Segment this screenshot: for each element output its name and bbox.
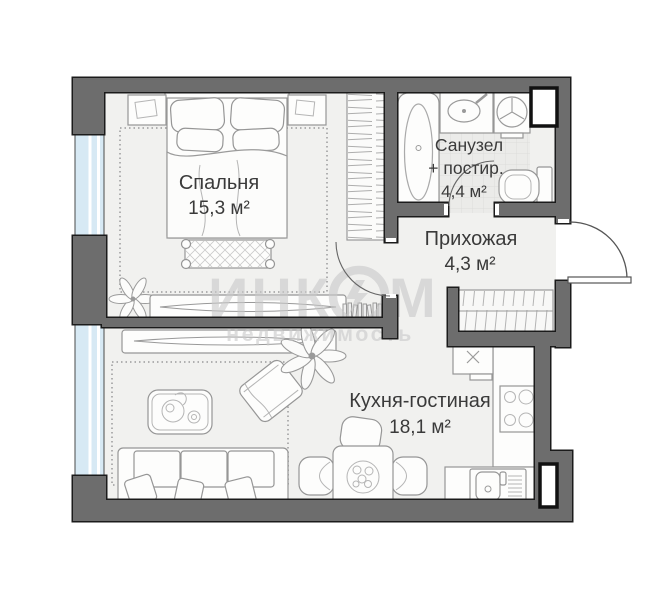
kitchen-label: Кухня-гостиная [349,390,491,412]
hallway-area: 4,3 м² [444,254,495,275]
bench-icon [182,240,275,269]
kitchen-area: 18,1 м² [389,417,451,438]
watermark: ИНК М недвижимость [208,266,436,346]
nightstand-icon [288,95,326,125]
washing-machine-icon [494,92,530,138]
toilet-icon [499,167,552,207]
pillow-icon [170,97,225,133]
entrance-door-icon [568,277,631,283]
door-arc-icon [570,222,627,279]
bathroom-label2: + постир. [428,158,503,178]
pillow-icon [232,128,279,152]
chair-icon [392,457,427,495]
floor-plan: ИНК М недвижимость [0,0,649,600]
sink-icon [440,92,493,133]
shaft-icon [540,464,557,507]
pillow-icon [176,128,223,152]
floor-plan-svg: ИНК М недвижимость [0,0,649,600]
hallway-label: Прихожая [425,228,518,250]
pillow-icon [230,97,285,133]
bedroom-area: 15,3 м² [188,198,250,219]
bedroom-label: Спальня [179,172,259,194]
stove-icon [500,386,534,432]
bathroom-label: Санузел [435,135,503,155]
chair-icon [299,457,334,495]
nightstand-icon [128,95,166,125]
wardrobe-icon [347,92,385,240]
coffee-table-icon [148,390,212,434]
closet-icon [458,290,553,332]
kitchen-sink-icon [470,469,526,503]
bathroom-area: 4,4 м² [441,182,487,201]
shaft-icon [531,88,557,126]
bathtub-icon [398,93,439,211]
